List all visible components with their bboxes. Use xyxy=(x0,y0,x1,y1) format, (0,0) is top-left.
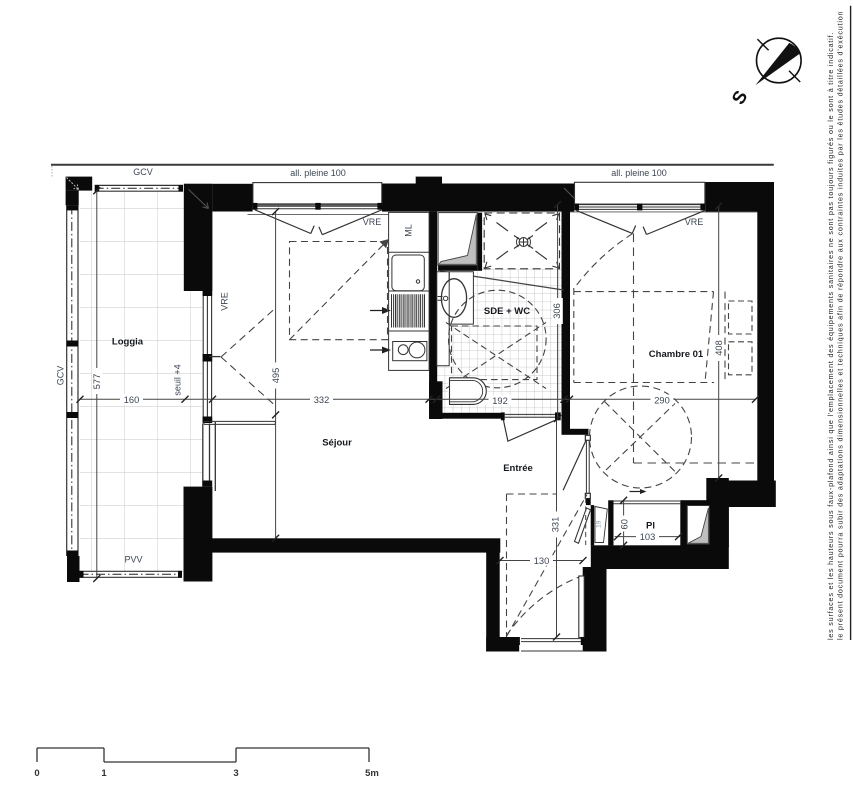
svg-text:60: 60 xyxy=(619,519,629,529)
svg-text:GCV: GCV xyxy=(56,366,66,386)
svg-text:Pl: Pl xyxy=(646,521,655,532)
svg-text:S: S xyxy=(727,87,751,108)
svg-text:290: 290 xyxy=(654,395,670,405)
svg-text:seuil +4: seuil +4 xyxy=(173,364,183,395)
svg-text:all. pleine 100: all. pleine 100 xyxy=(290,168,346,178)
svg-text:VRE: VRE xyxy=(685,217,704,227)
svg-text:1: 1 xyxy=(101,768,107,779)
svg-text:331: 331 xyxy=(551,517,561,533)
svg-text:160: 160 xyxy=(124,395,140,405)
svg-text:GCV: GCV xyxy=(133,167,153,177)
svg-text:5m: 5m xyxy=(365,768,379,779)
svg-text:495: 495 xyxy=(271,368,281,384)
svg-text:Loggia: Loggia xyxy=(112,337,144,348)
svg-text:ML: ML xyxy=(404,224,414,237)
svg-text:VRE: VRE xyxy=(220,292,230,311)
svg-text:Chambre 01: Chambre 01 xyxy=(649,349,704,360)
svg-text:3: 3 xyxy=(233,768,238,779)
svg-text:408: 408 xyxy=(714,340,724,356)
svg-text:130: 130 xyxy=(534,556,550,566)
svg-text:306: 306 xyxy=(552,303,562,319)
svg-text:577: 577 xyxy=(92,374,102,390)
svg-text:le présent document pourra sub: le présent document pourra subir des ada… xyxy=(835,11,844,640)
svg-text:103: 103 xyxy=(640,532,656,542)
svg-text:PVV: PVV xyxy=(124,555,142,565)
svg-text:Séjour: Séjour xyxy=(322,438,352,449)
svg-text:Entrée: Entrée xyxy=(503,463,533,474)
svg-text:les surfaces et les hauteurs s: les surfaces et les hauteurs sous faux-p… xyxy=(826,32,835,640)
svg-text:0: 0 xyxy=(34,768,39,779)
svg-text:192: 192 xyxy=(492,396,508,406)
svg-text:SDE + WC: SDE + WC xyxy=(484,306,530,317)
svg-text:19: 19 xyxy=(596,520,603,528)
svg-text:all. pleine 100: all. pleine 100 xyxy=(611,168,667,178)
svg-text:VRE: VRE xyxy=(363,217,382,227)
svg-text:332: 332 xyxy=(314,395,330,405)
